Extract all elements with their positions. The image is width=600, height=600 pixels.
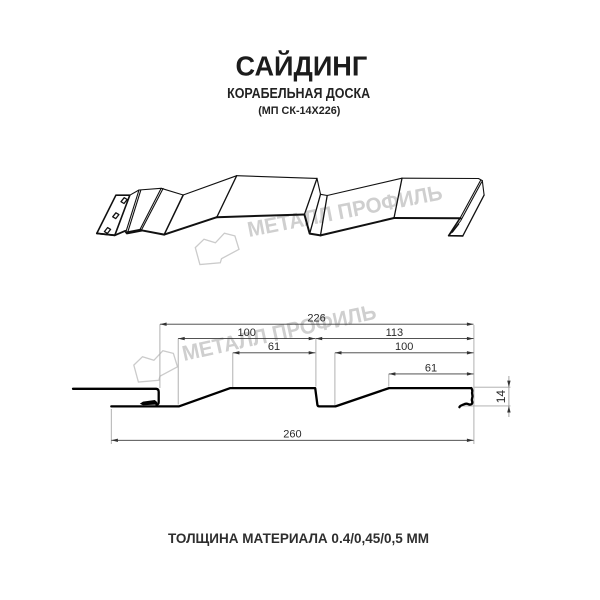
svg-text:ТОЛЩИНА МАТЕРИАЛА 0.4/0,45/0,5: ТОЛЩИНА МАТЕРИАЛА 0.4/0,45/0,5 ММ [168, 530, 429, 546]
svg-text:113: 113 [386, 327, 404, 339]
svg-text:61: 61 [425, 362, 437, 374]
svg-text:226: 226 [307, 313, 325, 325]
svg-text:МЕТАЛЛ ПРОФИЛЬ: МЕТАЛЛ ПРОФИЛЬ [245, 181, 444, 242]
svg-text:КОРАБЕЛЬНАЯ ДОСКА: КОРАБЕЛЬНАЯ ДОСКА [227, 86, 371, 102]
svg-text:61: 61 [268, 341, 280, 353]
svg-text:260: 260 [283, 429, 301, 441]
svg-text:МЕТАЛЛ ПРОФИЛЬ: МЕТАЛЛ ПРОФИЛЬ [180, 300, 379, 366]
svg-text:14: 14 [494, 390, 508, 404]
svg-text:100: 100 [395, 341, 413, 353]
svg-text:САЙДИНГ: САЙДИНГ [236, 50, 368, 82]
svg-text:100: 100 [238, 327, 256, 339]
svg-text:(МП СК-14Х226): (МП СК-14Х226) [258, 105, 340, 117]
